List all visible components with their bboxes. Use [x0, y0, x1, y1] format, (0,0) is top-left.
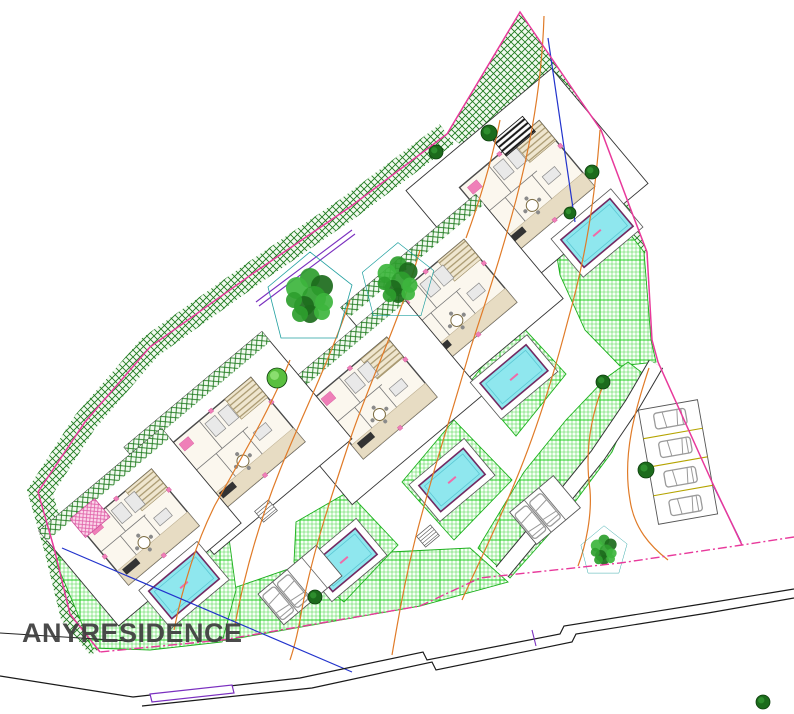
- road-layby: [150, 685, 234, 702]
- site-plan-canvas: ANYRESIDENCE: [0, 0, 794, 714]
- small-tree: [585, 165, 599, 179]
- small-tree: [564, 207, 576, 219]
- road-marker: [532, 630, 536, 646]
- small-tree: [596, 375, 610, 389]
- small-tree: [638, 462, 654, 478]
- small-tree: [481, 125, 497, 141]
- small-tree: [308, 590, 322, 604]
- small-tree: [429, 145, 443, 159]
- small-tree: [756, 695, 770, 709]
- site-plan-drawing: [0, 0, 794, 714]
- small-tree: [267, 368, 287, 388]
- watermark: ANYRESIDENCE: [22, 618, 243, 649]
